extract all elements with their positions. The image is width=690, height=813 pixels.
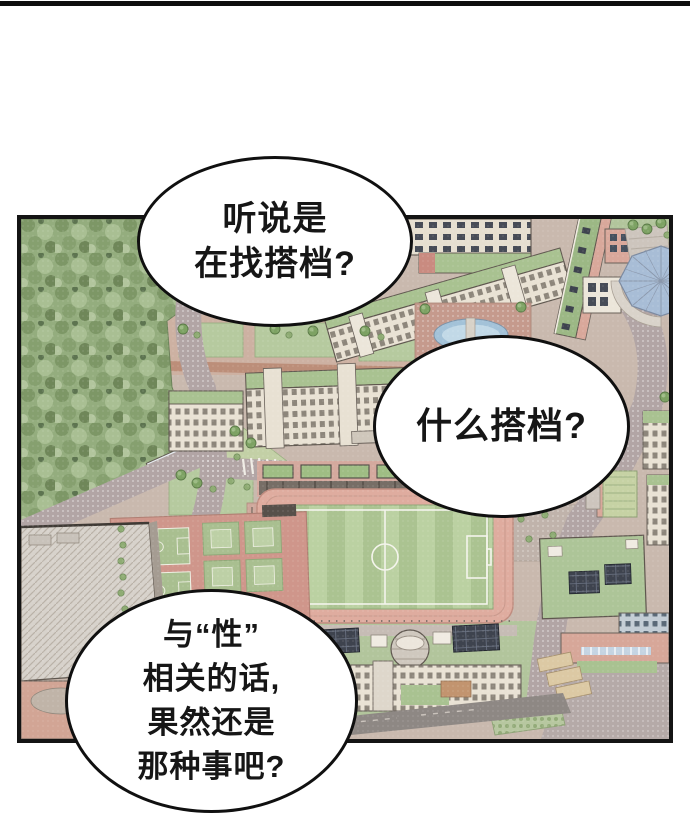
speech-line: 相关的话,	[143, 657, 281, 701]
speech-line: 什么搭档?	[416, 403, 587, 450]
speech-line: 那种事吧?	[138, 745, 286, 789]
speech-line: 与“性”	[163, 613, 260, 657]
speech-bubble-3: 与“性” 相关的话, 果然还是 那种事吧?	[65, 589, 358, 813]
speech-bubble-2: 什么搭档?	[373, 335, 630, 518]
top-divider	[0, 1, 690, 6]
speech-line: 果然还是	[148, 701, 276, 745]
speech-line: 在找搭档?	[194, 242, 356, 286]
speech-line: 听说是	[223, 197, 328, 241]
speech-bubble-1: 听说是 在找搭档?	[137, 156, 413, 327]
